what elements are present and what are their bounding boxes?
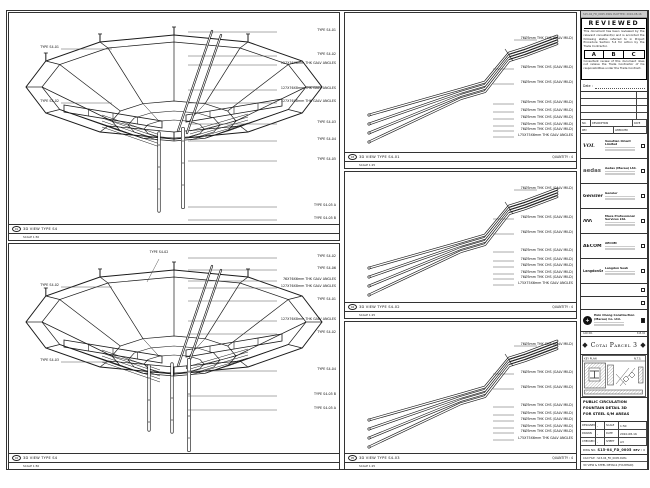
rim-connector [240, 42, 248, 48]
drawing-sheet: TYPE S4-01TYPE S4-02127X76X8mm THK GALV … [0, 0, 650, 488]
panel-3d-view-type-s4-02: 76Ø5mm THK CHS (GALV MILD)76Ø5mm THK CHS… [344, 171, 577, 319]
rim-connector [100, 42, 108, 48]
rev-label: REV : [633, 448, 641, 452]
view-title: 3D VIEW TYPE S4-03 [359, 456, 400, 460]
callout-label: 76Ø5mm THK CHS (GALV MILD) [515, 216, 573, 219]
panel-3d-view-type-s4-bottom: TYPE S4-02TYPE S4-0676X76X6mm THK GALV A… [8, 243, 340, 470]
rim-connector [46, 345, 60, 349]
address-lines [605, 271, 635, 276]
gensler-logo: Gensler [583, 194, 603, 199]
revision-empty-row [581, 113, 647, 120]
rim-connector [46, 61, 60, 65]
field-date-value: 2010-08-16 [619, 430, 647, 438]
callout-label: 127X76X8mm THK GALV ANGLES [278, 62, 336, 65]
revision-footer-row: REV APPROVED [581, 127, 647, 134]
date-label: Date : [583, 84, 593, 88]
plot-stamp-strip: S15-04_FD_0005.DWG PLOTTED: 2010-08-16 [581, 11, 647, 18]
consultant-row-aecom: AECOM AECOM [581, 234, 647, 259]
post-bolt-dot [158, 144, 159, 145]
callout-label: TYPE S4-02 [137, 251, 181, 254]
consultant-row-aedas: aedas Aedas (Macau) Ltd. [581, 159, 647, 184]
status-checkbox [641, 288, 646, 293]
brace-ladder [102, 115, 160, 135]
view-label-strip: 02 3D VIEW TYPE S4 SCALE 1:50 [9, 453, 339, 469]
revision-col-date: DATE [633, 120, 647, 127]
rim-connector [46, 296, 60, 300]
address-lines [594, 322, 624, 327]
callout-label: TYPE S4-01 [278, 298, 336, 301]
brace-ladder [102, 124, 160, 144]
status-checkbox [641, 301, 646, 306]
callout-label: TYPE S4-06 [278, 267, 336, 270]
callout-label: 76Ø5mm THK CHS (GALV MILD) [515, 81, 573, 84]
project-banner: ◆ Cotai Parcel 3 ◆ [581, 337, 647, 355]
tube-end-cap [368, 141, 370, 143]
rim-connector [100, 126, 108, 132]
post-bolt-dot [158, 166, 159, 167]
callout-label: 76Ø5mm THK CHS (GALV MILD) [515, 412, 573, 415]
field-date-label: DATE [605, 430, 619, 438]
contractor-logo: + [583, 316, 592, 325]
view-title: 3D VIEW TYPE S4 [23, 227, 57, 231]
status-checkbox [641, 194, 646, 199]
address-lines [605, 147, 635, 152]
view-quantity: QUANTITY : 4 [552, 155, 573, 159]
view-quantity: QUANTITY : 4 [552, 456, 573, 460]
callout-label: TYPE S4-04 [278, 138, 336, 141]
callout-label: 76Ø5mm THK CHS (GALV MILD) [515, 418, 573, 421]
post-bolt-dot [171, 419, 172, 420]
rim-connector [240, 126, 248, 132]
radial-rib [60, 65, 121, 112]
brace-ladder [102, 350, 160, 370]
view-title: 3D VIEW TYPE S4 [23, 456, 57, 460]
status-checkbox [641, 269, 646, 274]
callout-label: 76Ø5mm THK CHS (GALV MILD) [515, 37, 573, 40]
callout-label: 76Ø5mm THK CHS (GALV MILD) [515, 430, 573, 433]
project-name: Cotai Parcel 3 [591, 342, 638, 349]
view-scale: SCALE 1:50 [23, 464, 39, 468]
view-scale: SCALE 1:25 [359, 313, 375, 317]
callout-label: L75X75X6mm THK GALV ANGLES [515, 134, 573, 137]
contractor-name: Hsin Chong Construction (Macau) Co. Ltd. [594, 314, 639, 320]
post-bolt-dot [182, 162, 183, 163]
tube-end-cap [368, 114, 370, 116]
callout-label: 76Ø5mm THK CHS (GALV MILD) [515, 109, 573, 112]
date-fill-line [595, 83, 645, 89]
post-bolt-dot [148, 399, 149, 400]
title-block-fields: DESIGNED - SCALE 1:50 DRAWN - DATE 2010-… [581, 422, 647, 446]
callout-label: TYPE S4-05 A [278, 407, 336, 410]
callout-label: TYPE S4-05 B [278, 393, 336, 396]
radial-rib [205, 48, 240, 104]
status-checkbox-filled [641, 318, 646, 323]
venetian-orient-logo: VOL [583, 143, 603, 149]
tube-end-cap [368, 419, 370, 421]
rim-connector [288, 345, 302, 349]
view-number-badge: 04 [348, 304, 357, 310]
view-title: 3D VIEW TYPE S4-01 [359, 155, 400, 159]
post-bolt-dot [148, 421, 149, 422]
steel-tube-core [187, 35, 221, 133]
dwg-no-value: S15-04_FD_0005 [598, 448, 632, 452]
view-number-badge: 05 [348, 455, 357, 461]
key-plan-right-label: N.T.S. [634, 357, 642, 361]
drawing-area: 76Ø5mm THK CHS (GALV MILD)76Ø5mm THK CHS… [345, 13, 576, 152]
view-label-strip: 05 3D VIEW TYPE S4-03 QUANTITY : 4 SCALE… [345, 453, 576, 469]
panel-3d-view-type-s4-01: 76Ø5mm THK CHS (GALV MILD)76Ø5mm THK CHS… [344, 12, 577, 169]
post-bolt-dot [182, 140, 183, 141]
callout-label: 127X76X8mm THK GALV ANGLES [278, 318, 336, 321]
callout-label: 127X76X8mm THK GALV ANGLES [278, 87, 336, 90]
callout-label: TYPE S4-05 A [278, 204, 336, 207]
callout-label: 127X76X8mm THK GALV ANGLES [278, 285, 336, 288]
cad-value: S15-04 [637, 332, 645, 336]
status-checkbox [641, 219, 646, 224]
field-designed-label: DESIGNED [581, 422, 596, 430]
drawing-area: TYPE S4-02TYPE S4-0676X76X6mm THK GALV A… [9, 244, 339, 453]
panel-3d-view-type-s4-top: TYPE S4-01TYPE S4-02127X76X8mm THK GALV … [8, 12, 340, 241]
key-plan-left-label: KEY PLAN [584, 357, 597, 361]
address-lines [605, 222, 635, 227]
callout-label: TYPE S4-02 [13, 100, 59, 103]
status-option-a: A [585, 51, 605, 59]
key-plan: KEY PLAN N.T.S. [581, 355, 647, 399]
callout-label: 76Ø5mm THK CHS (GALV MILD) [515, 386, 573, 389]
callout-label: TYPE S4-01 [278, 29, 336, 32]
status-option-c: C [624, 51, 644, 59]
view-scale: SCALE 1:50 [23, 235, 39, 239]
field-sheet-label: SHEET [605, 438, 619, 446]
consultant-name: Aedas (Macau) Ltd. [605, 167, 639, 170]
tube-end-cap [368, 428, 370, 430]
post-bolt-dot [158, 188, 159, 189]
callout-label: 76Ø5mm THK CHS (GALV MILD) [515, 128, 573, 131]
callout-label: L75X75X6mm THK GALV ANGLES [515, 437, 573, 440]
reviewed-stamp-title: REVIEWED [584, 20, 645, 30]
field-designed-value: - [596, 422, 605, 430]
field-scale-value: 1:50 [619, 422, 647, 430]
post-bolt-dot [182, 184, 183, 185]
callout-label: L75X75X6mm THK GALV ANGLES [515, 282, 573, 285]
callout-label: 76Ø5mm THK CHS (GALV MILD) [515, 425, 573, 428]
tube-end-cap [368, 285, 370, 287]
callout-label: 76Ø5mm THK CHS (GALV MILD) [515, 264, 573, 267]
consultant-name: Gensler [605, 192, 639, 195]
revision-empty-row [581, 106, 647, 113]
maca-logo: ΛΛΛ [583, 219, 603, 224]
post-bolt-dot [188, 415, 189, 416]
tube-end-cap [368, 267, 370, 269]
callout-label: TYPE S4-02 [13, 284, 59, 287]
callout-label: 76Ø5mm THK CHS (GALV MILD) [515, 271, 573, 274]
view-label-strip: 04 3D VIEW TYPE S4-02 QUANTITY : 4 SCALE… [345, 302, 576, 318]
drawing-title: PUBLIC CIRCULATION FOUNTAIN DETAIL 3D FO… [581, 398, 647, 422]
status-checkbox [641, 169, 646, 174]
callout-label: 76Ø5mm THK CHS (GALV MILD) [515, 371, 573, 374]
view-scale: SCALE 1:25 [359, 163, 375, 167]
langdon-seah-logo: LangdonSeah [583, 269, 603, 273]
view-number-badge: 01 [12, 226, 21, 232]
callout-label: TYPE S4-01 [13, 46, 59, 49]
callout-label: TYPE S4-03 [278, 121, 336, 124]
structure-drawing [9, 244, 339, 453]
callout-label: 76Ø5mm THK CHS (GALV MILD) [515, 187, 573, 190]
field-scale-label: SCALE [605, 422, 619, 430]
rev-value: 0 [643, 448, 645, 452]
radial-rib [108, 48, 143, 104]
reviewed-stamp-text-1: This document has been reviewed by the r… [584, 29, 645, 49]
consultant-row-blank [581, 297, 647, 310]
revision-empty-row [581, 92, 647, 99]
post-bolt-dot [188, 437, 189, 438]
brace-ladder [102, 356, 160, 376]
title-block-column: S15-04_FD_0005.DWG PLOTTED: 2010-08-16 R… [580, 10, 648, 470]
radial-rib [108, 283, 143, 339]
post-bolt-dot [188, 393, 189, 394]
callout-label: 76Ø5mm THK CHS (GALV MILD) [515, 343, 573, 346]
tube-end-cap [368, 437, 370, 439]
callout-label: TYPE S4-02 [278, 331, 336, 334]
callout-label: TYPE S4-05 [278, 158, 336, 161]
contractor-row: + Hsin Chong Construction (Macau) Co. Lt… [581, 310, 647, 332]
cad-file-row: CAD FILE : S15-04_FD_0005.DWG [581, 455, 647, 462]
post-bolt-dot [171, 397, 172, 398]
status-option-b: B [604, 51, 624, 59]
tube-end-cap [368, 294, 370, 296]
tube-end-cap [368, 132, 370, 134]
drawing-area: TYPE S4-01TYPE S4-02127X76X8mm THK GALV … [9, 13, 339, 224]
callout-label: 76Ø5mm THK CHS (GALV MILD) [515, 231, 573, 234]
field-checked-label: CHECKED [581, 438, 596, 446]
radial-rib [205, 283, 240, 339]
tube-end-cap [368, 446, 370, 448]
revision-table: NO. DESCRIPTION DATE REV APPROVED [581, 92, 647, 134]
callout-label: 76Ø5mm THK CHS (GALV MILD) [515, 123, 573, 126]
callout-label: TYPE S4-03 [13, 359, 59, 362]
drawing-number-row: DWG NO. S15-04_FD_0005 REV : 0 [581, 446, 647, 455]
consultant-name: Langdon Seah [605, 267, 639, 270]
callout-label: TYPE S4-02 [278, 255, 336, 258]
reviewed-stamp: REVIEWED This document has been reviewed… [581, 18, 647, 80]
status-abc-row: A B C [584, 50, 645, 59]
callout-label: TYPE S4-04 [278, 368, 336, 371]
address-lines [605, 246, 635, 251]
revision-col-rev: REV [581, 127, 614, 134]
cad-label: CAD NO. [583, 332, 593, 336]
callout-label: TYPE S4-05 B [278, 217, 336, 220]
field-drawn-value: - [596, 430, 605, 438]
consultant-name: Maca Professional Services Ltd. [605, 215, 639, 221]
panel-3d-view-type-s4-03: 76Ø5mm THK CHS (GALV MILD)76Ø5mm THK CHS… [344, 321, 577, 470]
drawing-area: 76Ø5mm THK CHS (GALV MILD)76Ø5mm THK CHS… [345, 322, 576, 453]
field-drawn-label: DRAWN [581, 430, 596, 438]
consultant-row-maca: ΛΛΛ Maca Professional Services Ltd. [581, 209, 647, 234]
callout-label: 76Ø5mm THK CHS (GALV MILD) [515, 404, 573, 407]
reviewed-stamp-text-2: Consultant review of this document does … [584, 59, 645, 72]
revision-empty-row [581, 99, 647, 106]
revision-header-row: NO. DESCRIPTION DATE [581, 120, 647, 127]
dwg-no-label: DWG NO. [583, 448, 596, 452]
view-label-strip: 01 3D VIEW TYPE S4 SCALE 1:50 [9, 224, 339, 240]
date-row: Date : [581, 80, 647, 92]
view-scale: SCALE 1:25 [359, 464, 375, 468]
view-number-badge: 03 [348, 154, 357, 160]
view-label-strip: 03 3D VIEW TYPE S4-01 QUANTITY : 4 SCALE… [345, 152, 576, 168]
consultant-row-blank [581, 284, 647, 297]
callout-label: 76Ø5mm THK CHS (GALV MILD) [515, 116, 573, 119]
drawing-title-line-3: FOR STEEL S/M AREAS [583, 412, 645, 418]
revision-col-approved: APPROVED [614, 127, 647, 134]
consultant-name: AECOM [605, 242, 639, 245]
rim-connector [100, 277, 108, 283]
banner-ornament-icon: ◆ [640, 342, 645, 349]
rim-connector [46, 110, 60, 114]
field-sheet-value: A3 [619, 438, 647, 446]
consultant-row-langdon-seah: LangdonSeah Langdon Seah [581, 259, 647, 284]
revision-col-no: NO. [581, 120, 591, 127]
callout-label: 127X76X8mm THK GALV ANGLES [278, 100, 336, 103]
steel-tube-core [187, 270, 221, 368]
post-bolt-dot [148, 377, 149, 378]
consultant-name: Venetian Orient Limited [605, 140, 639, 146]
status-checkbox [641, 244, 646, 249]
consultant-row-venetian-orient: VOL Venetian Orient Limited [581, 134, 647, 159]
view-title: 3D VIEW TYPE S4-02 [359, 305, 400, 309]
brace-ladder [102, 121, 160, 141]
address-lines [605, 196, 635, 201]
drawing-area: 76Ø5mm THK CHS (GALV MILD)76Ø5mm THK CHS… [345, 172, 576, 302]
field-checked-value: - [596, 438, 605, 446]
callout-label: TYPE S4-02 [278, 53, 336, 56]
address-lines [605, 171, 635, 176]
tube-end-cap [368, 123, 370, 125]
view-quantity: QUANTITY : 4 [552, 305, 573, 309]
key-plan-map: KEY PLAN N.T.S. [582, 355, 646, 397]
callout-label: 76X76X6mm THK GALV ANGLES [278, 278, 336, 281]
callout-label: 76Ø5mm THK CHS (GALV MILD) [515, 258, 573, 261]
revision-col-description: DESCRIPTION [591, 120, 633, 127]
rim-connector [240, 277, 248, 283]
callout-label: 76Ø5mm THK CHS (GALV MILD) [515, 101, 573, 104]
callout-label: 76Ø5mm THK CHS (GALV MILD) [515, 276, 573, 279]
consultant-list: VOL Venetian Orient Limited aedas Aedas … [581, 134, 647, 310]
post-bolt-dot [188, 371, 189, 372]
tube-end-cap [368, 276, 370, 278]
aecom-logo: AECOM [583, 244, 603, 249]
aedas-logo: aedas [583, 168, 603, 174]
radial-rib [60, 300, 121, 347]
rim-connector [240, 361, 248, 367]
rim-connector [288, 110, 302, 114]
callout-label: 76Ø5mm THK CHS (GALV MILD) [515, 249, 573, 252]
post-bolt-dot [171, 375, 172, 376]
status-checkbox [641, 144, 646, 149]
consultant-row-gensler: Gensler Gensler [581, 184, 647, 209]
plot-info-row: 3D VIEW & STEEL DETAILS (FOUNTAIN) [581, 462, 647, 469]
view-number-badge: 02 [12, 455, 21, 461]
callout-label: 76Ø5mm THK CHS (GALV MILD) [515, 66, 573, 69]
banner-ornament-icon: ◆ [582, 342, 587, 349]
